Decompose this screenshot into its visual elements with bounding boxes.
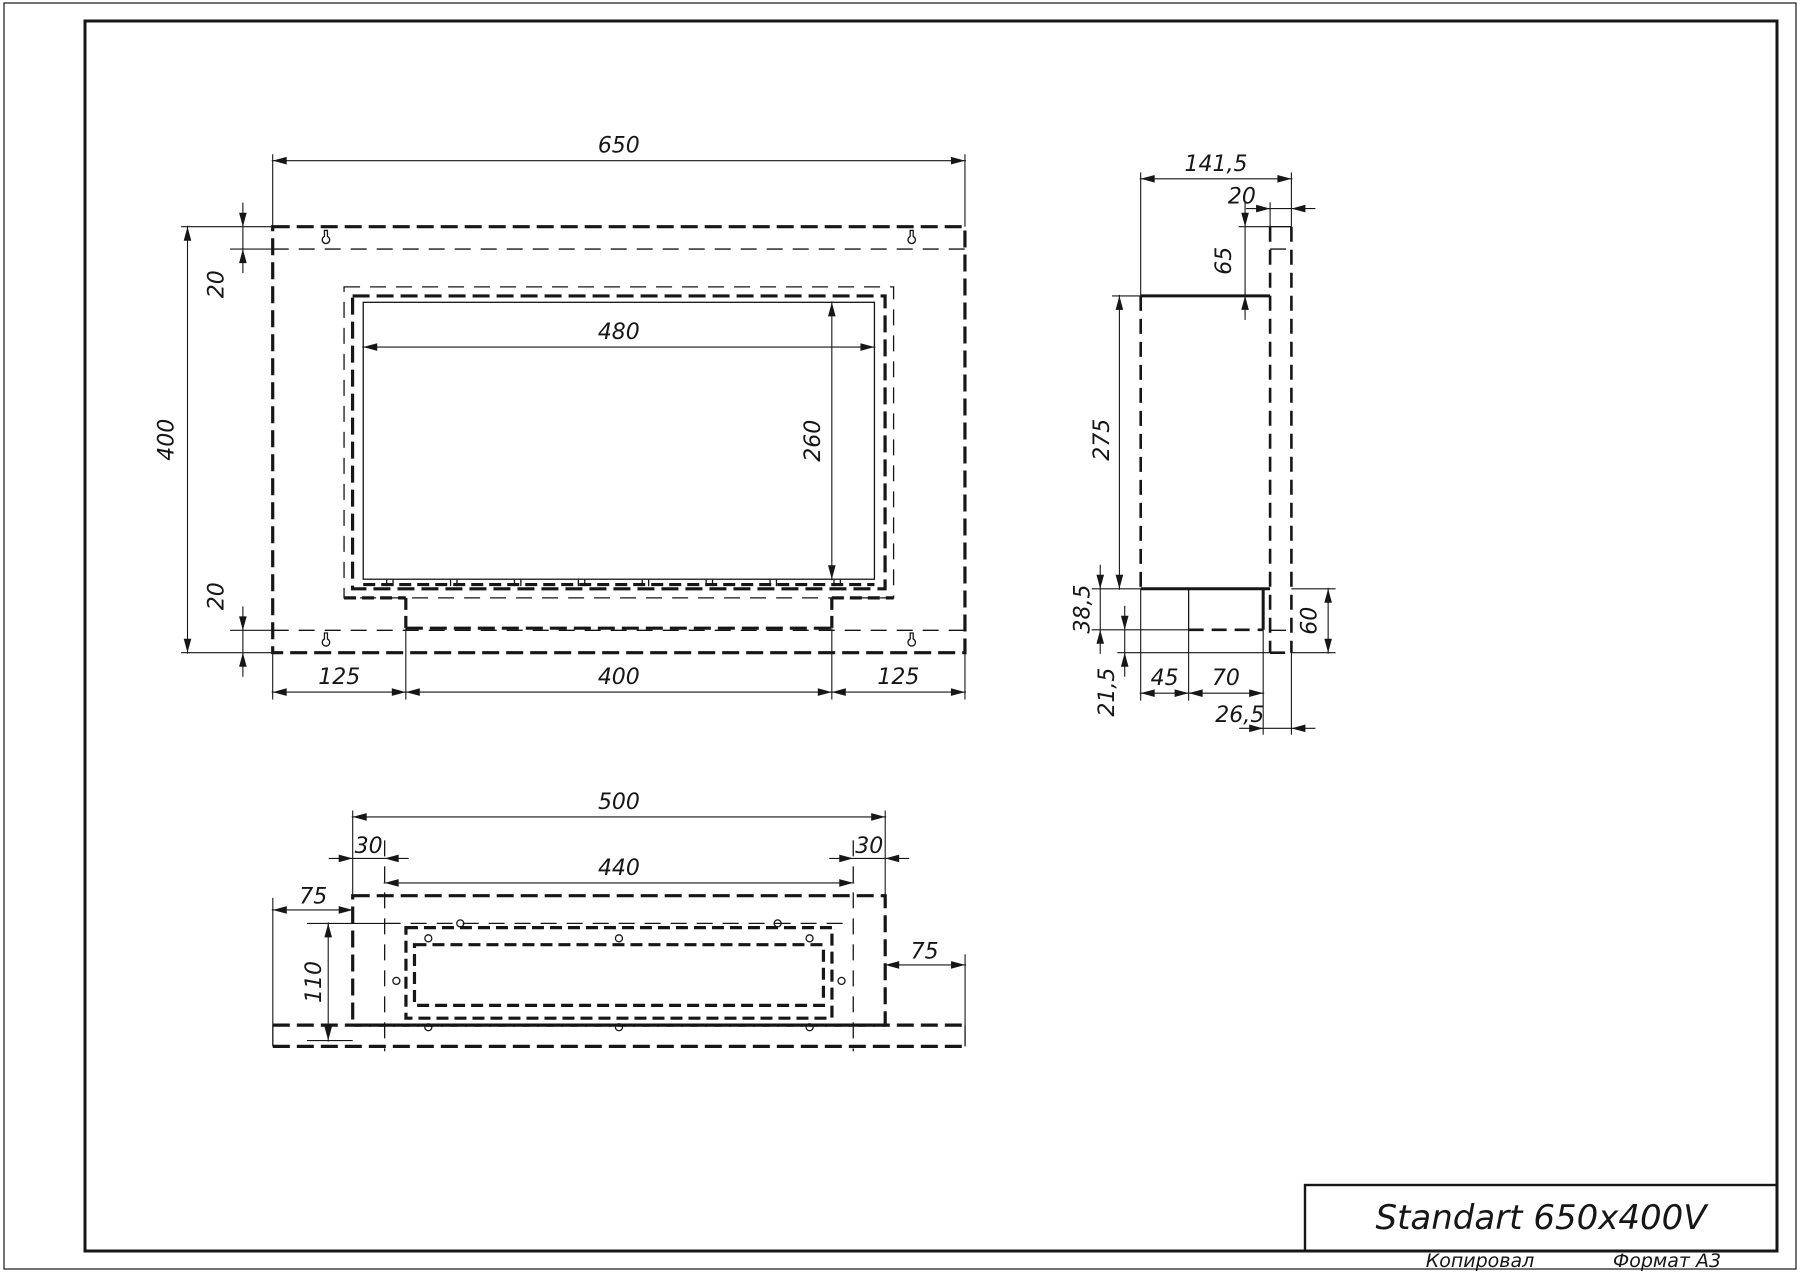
- drawing-title: Standart 650x400V: [1375, 1198, 1709, 1238]
- dim-side-bottom-total-label: 60: [1297, 607, 1322, 635]
- dim-bottom-body-width-label: 500: [598, 790, 640, 815]
- dim-side-total-depth-label: 141,5: [1185, 152, 1248, 177]
- dim-front-total-height-label: 400: [155, 419, 180, 461]
- dim-side-top-offset-label: 65: [1212, 247, 1237, 275]
- sheet-background: [0, 0, 1800, 1273]
- dim-side-burner-depth-label: 70: [1212, 666, 1240, 691]
- dim-front-top-inset-label: 20: [205, 270, 230, 298]
- technical-drawing-canvas: 6504002020480260125400125141,5206527538,…: [0, 0, 1800, 1273]
- dim-front-bottom-left-label: 125: [318, 665, 360, 690]
- dim-side-flange-thickness-label: 20: [1228, 184, 1256, 209]
- dim-front-bottom-inset-label: 20: [205, 582, 230, 610]
- dim-bottom-left-flange-label: 75: [299, 885, 327, 910]
- drawing-sheet: 6504002020480260125400125141,5206527538,…: [0, 0, 1800, 1273]
- dim-bottom-depth-label: 110: [302, 961, 327, 1003]
- dim-bottom-inner-width-label: 440: [598, 856, 640, 881]
- copied-label: Копировал: [1426, 1250, 1535, 1272]
- dim-bottom-left-inset-label: 30: [355, 834, 383, 859]
- dim-side-front-to-burner-label: 45: [1151, 666, 1179, 691]
- dim-side-body-height-label: 275: [1090, 419, 1115, 461]
- dim-front-opening-height-label: 260: [801, 420, 826, 462]
- format-label: Формат A3: [1613, 1250, 1721, 1272]
- dim-front-total-width-label: 650: [598, 134, 640, 159]
- dim-front-burner-width-label: 400: [598, 665, 640, 690]
- dim-front-bottom-right-label: 125: [877, 665, 919, 690]
- dim-front-opening-width-label: 480: [598, 320, 640, 345]
- dim-bottom-right-inset-label: 30: [855, 834, 883, 859]
- dim-side-burner-to-back-label: 26,5: [1215, 703, 1264, 728]
- dim-side-burner-drop-label: 38,5: [1071, 585, 1096, 634]
- dim-bottom-right-flange-label: 75: [911, 940, 939, 965]
- dim-side-flange-below-label: 21,5: [1095, 668, 1120, 717]
